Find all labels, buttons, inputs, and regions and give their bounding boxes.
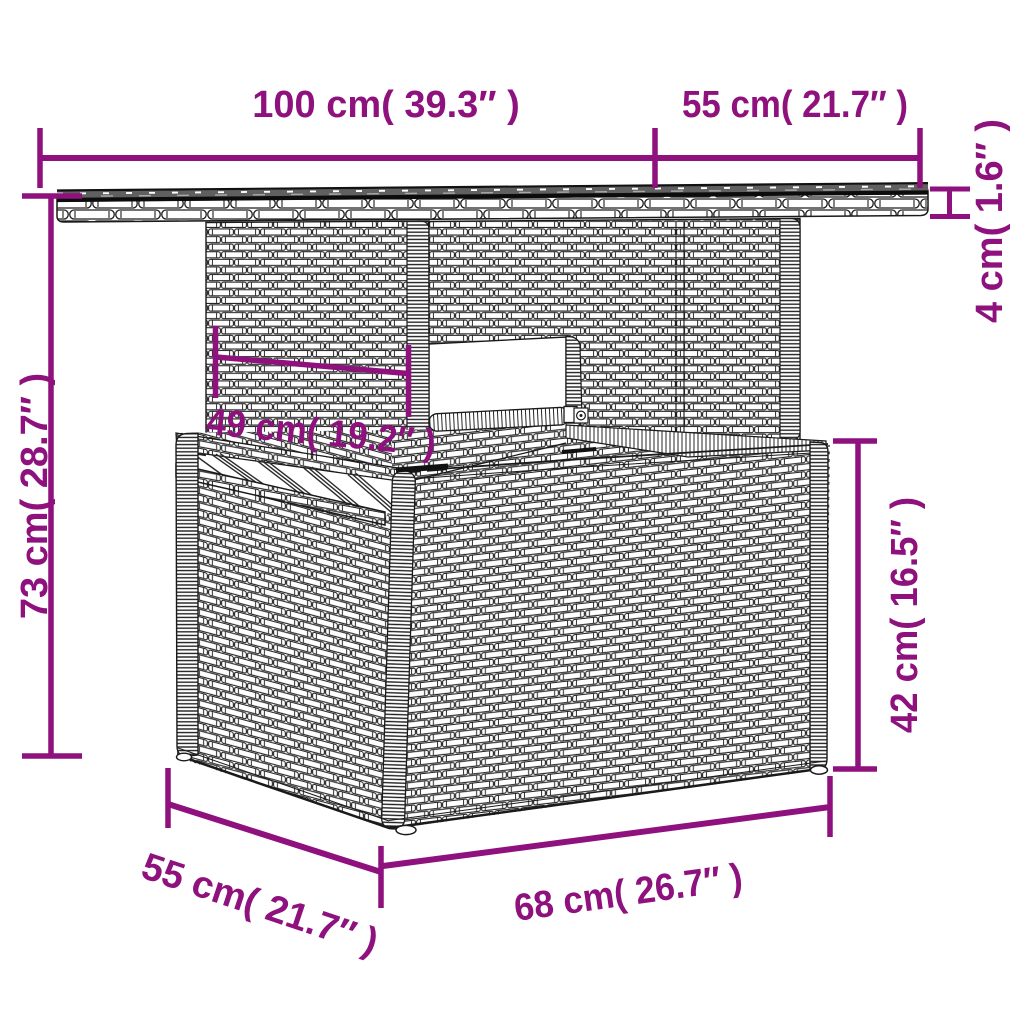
svg-text:55 cm( 21.7″ ): 55 cm( 21.7″ ) bbox=[682, 84, 908, 126]
svg-text:4 cm( 1.6″ ): 4 cm( 1.6″ ) bbox=[969, 119, 1011, 323]
svg-text:100 cm( 39.3″ ): 100 cm( 39.3″ ) bbox=[252, 84, 519, 126]
svg-text:73 cm( 28.7″ ): 73 cm( 28.7″ ) bbox=[14, 373, 56, 619]
svg-text:42 cm( 16.5″ ): 42 cm( 16.5″ ) bbox=[884, 497, 926, 733]
